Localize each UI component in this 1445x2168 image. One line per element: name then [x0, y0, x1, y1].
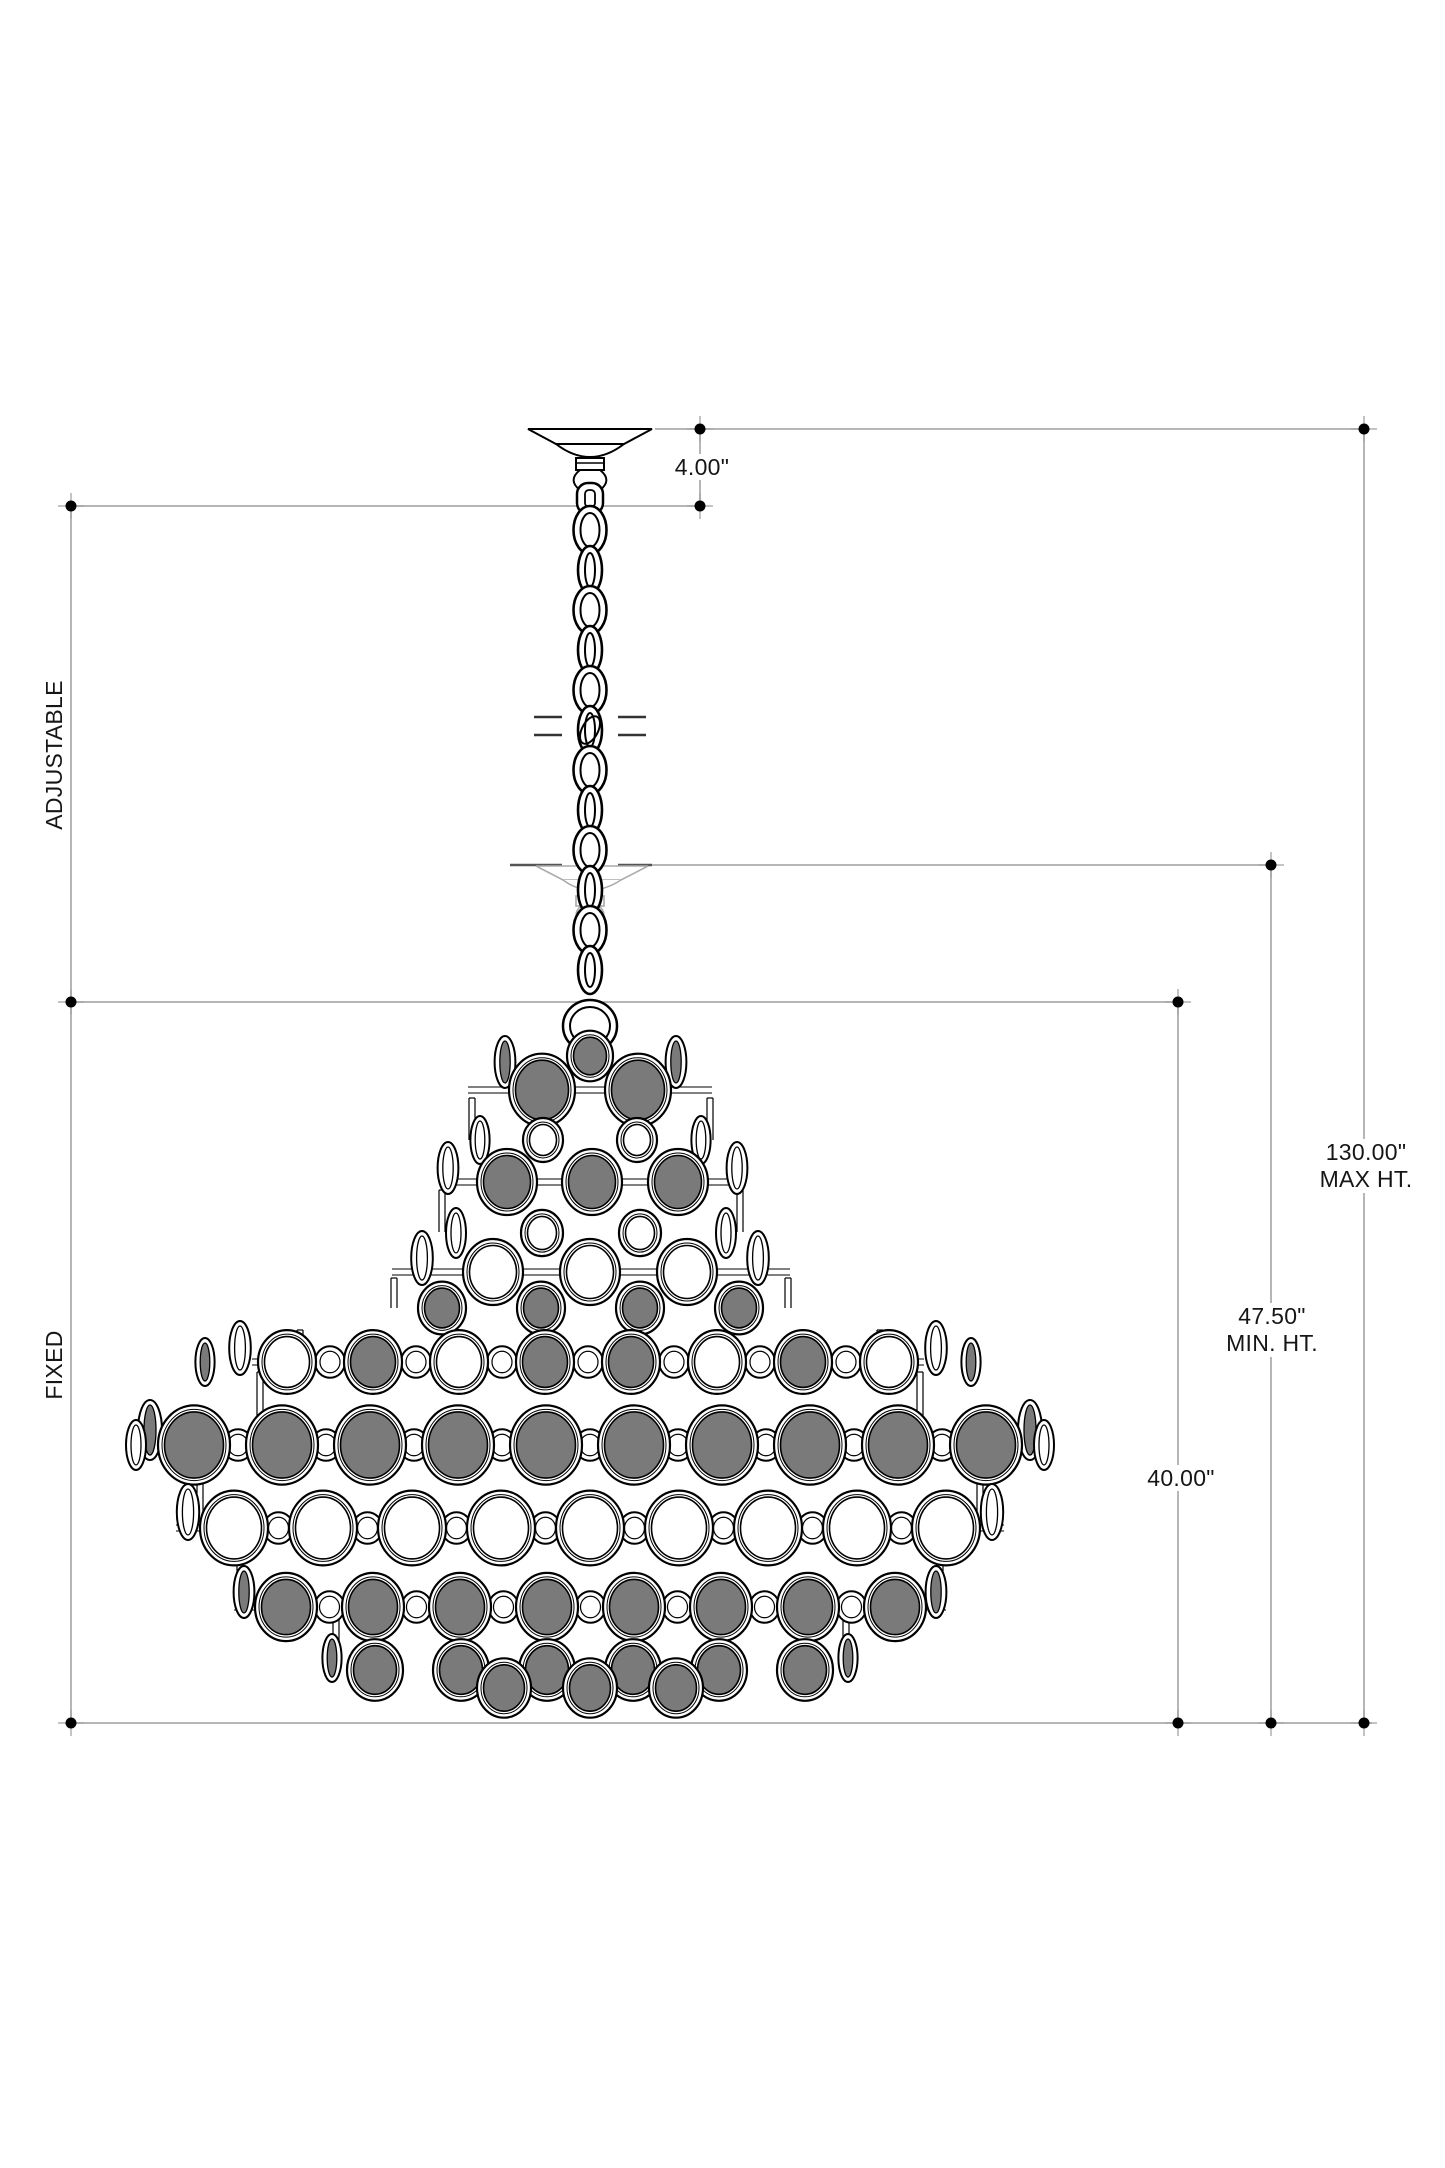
max-height-value: 130.00"	[1320, 1139, 1413, 1166]
canopy-and-chain	[528, 429, 652, 994]
drawing-sheet: ADJUSTABLE FIXED 4.00" 130.00" MAX HT. 4…	[0, 0, 1445, 2168]
max-height-label: MAX HT.	[1320, 1166, 1413, 1193]
min-height-value: 47.50"	[1226, 1303, 1318, 1330]
min-height-label: MIN. HT.	[1226, 1330, 1318, 1357]
chandelier-diagram	[0, 0, 1445, 2168]
canopy-drop-dimension: 4.00"	[671, 454, 733, 480]
min-height-dimension: 47.50" MIN. HT.	[1221, 1303, 1323, 1357]
fixed-label: FIXED	[41, 1326, 67, 1403]
max-height-dimension: 130.00" MAX HT.	[1315, 1139, 1418, 1193]
fixture-height-dimension: 40.00"	[1143, 1465, 1219, 1491]
adjustable-label: ADJUSTABLE	[41, 676, 67, 834]
chandelier-body	[126, 1000, 1054, 1718]
